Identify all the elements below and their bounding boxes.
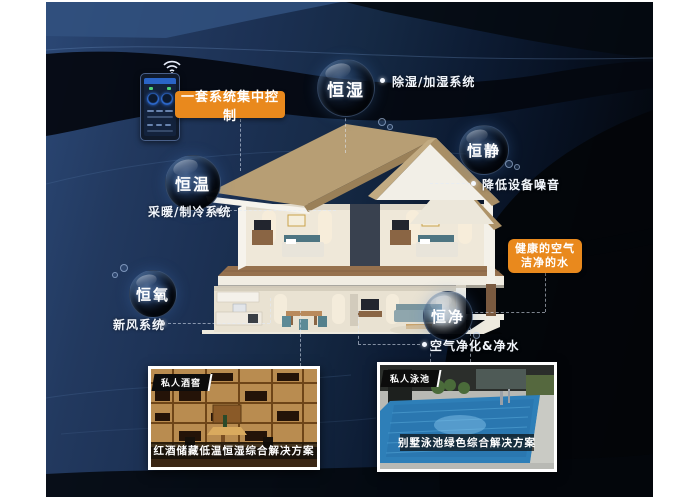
wine-cellar-photo: 私人酒窖 红酒储藏低温恒湿综合解决方案	[151, 369, 317, 467]
mini-bubble	[378, 118, 386, 126]
bubble-quiet-label: 恒静	[467, 140, 501, 161]
mini-bubble	[120, 264, 128, 272]
connector-fresh-air-up	[270, 298, 271, 323]
dot-purity	[422, 342, 427, 347]
bubble-quiet: 恒静	[459, 125, 509, 175]
highlight-box: 健康的空气 洁净的水	[508, 239, 582, 273]
bubble-oxygen-label: 恒氧	[136, 284, 170, 305]
pool-card: 私人泳池 别墅泳池绿色综合解决方案	[377, 362, 557, 472]
connector-fresh-air	[168, 323, 270, 324]
connector-temperature	[224, 210, 336, 211]
highlight-line2: 洁净的水	[521, 256, 569, 270]
bubble-purity-label: 恒净	[431, 306, 465, 327]
mini-bubble	[112, 272, 118, 278]
pool-photo: 私人泳池 别墅泳池绿色综合解决方案	[380, 365, 554, 469]
connector-highlight-down	[545, 273, 546, 312]
smart-home-diagram: 一套系统集中控制 恒湿 恒静 恒温 恒氧 恒净 除湿/加湿系统 降低设备噪音	[46, 2, 653, 497]
connector-quiet	[430, 183, 470, 184]
pool-badge: 私人泳池	[381, 370, 442, 387]
bubble-humidity: 恒湿	[317, 59, 375, 117]
wine-cellar-card: 私人酒窖 红酒储藏低温恒湿综合解决方案	[148, 366, 320, 470]
bubble-purity: 恒净	[423, 291, 473, 341]
connector-purify-up	[358, 310, 359, 344]
callout-fresh-air: 新风系统	[113, 316, 165, 333]
bubble-temperature-label: 恒温	[175, 171, 211, 195]
callout-quiet: 降低设备噪音	[482, 176, 560, 193]
dot-quiet	[471, 181, 476, 186]
callout-purity: 空气净化&净水	[430, 337, 519, 354]
control-panel-device	[140, 73, 180, 141]
highlight-line1: 健康的空气	[515, 242, 575, 256]
mini-bubble	[514, 164, 520, 170]
infographic-page: 一套系统集中控制 恒湿 恒静 恒温 恒氧 恒净 除湿/加湿系统 降低设备噪音	[0, 0, 700, 497]
callout-temperature: 采暖/制冷系统	[148, 203, 231, 220]
mini-bubble	[505, 160, 513, 168]
bubble-oxygen: 恒氧	[129, 270, 177, 318]
control-panel-screen	[144, 78, 176, 136]
bubble-humidity-label: 恒湿	[327, 76, 365, 101]
wine-cellar-badge: 私人酒窖	[152, 374, 213, 391]
central-control-text: 一套系统集中控制	[175, 86, 285, 124]
dot-humidity	[380, 78, 385, 83]
connector-control	[240, 119, 241, 171]
central-control-label: 一套系统集中控制	[175, 91, 285, 118]
connector-wine-inset	[300, 310, 301, 366]
connector-purify	[358, 344, 420, 345]
connector-highlight-left	[470, 312, 545, 313]
callout-humidity: 除湿/加湿系统	[392, 73, 475, 90]
wine-cellar-caption: 红酒储藏低温恒湿综合解决方案	[151, 442, 317, 459]
pool-badge-text: 私人泳池	[390, 372, 430, 385]
mini-bubble	[387, 124, 393, 130]
connector-humidity	[345, 113, 346, 153]
wine-cellar-badge-text: 私人酒窖	[161, 376, 201, 389]
pool-caption: 别墅泳池绿色综合解决方案	[400, 434, 534, 451]
